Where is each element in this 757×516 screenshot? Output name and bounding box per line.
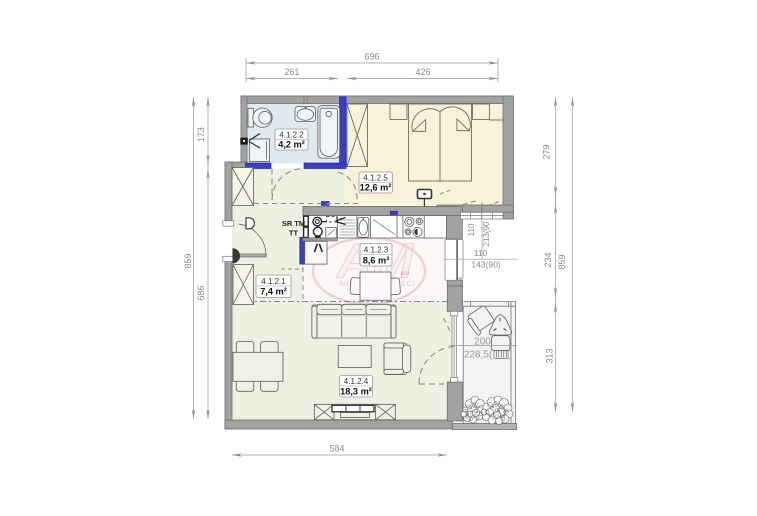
svg-text:4.1.2.4: 4.1.2.4 (344, 377, 369, 386)
svg-text:4.1.2.3: 4.1.2.3 (364, 245, 389, 254)
svg-text:173: 173 (196, 127, 206, 142)
svg-text:4.1.2.5: 4.1.2.5 (363, 174, 388, 183)
svg-text:7,4 m²: 7,4 m² (260, 287, 287, 297)
svg-text:4.1.2.1: 4.1.2.1 (261, 277, 286, 286)
svg-text:): ) (509, 350, 512, 361)
svg-text:200: 200 (474, 337, 491, 348)
svg-text:213(90: 213(90 (482, 221, 491, 246)
svg-text:4,2 m²: 4,2 m² (278, 140, 305, 150)
svg-text:.ple: .ple (399, 270, 410, 277)
svg-text:686: 686 (196, 285, 206, 300)
svg-text:426: 426 (415, 67, 430, 77)
svg-text:584: 584 (329, 444, 344, 454)
svg-text:261: 261 (284, 67, 299, 77)
svg-text:859: 859 (557, 254, 567, 269)
svg-text:12,6 m²: 12,6 m² (360, 183, 392, 193)
svg-text:SR TM: SR TM (282, 219, 305, 228)
svg-text:110: 110 (467, 223, 476, 236)
svg-text:696: 696 (364, 52, 379, 62)
svg-text:279: 279 (542, 144, 552, 159)
svg-text:TT: TT (289, 229, 299, 238)
svg-text:110: 110 (474, 248, 488, 258)
svg-text:8,6 m²: 8,6 m² (363, 256, 390, 266)
svg-text:313: 313 (545, 348, 555, 363)
svg-text:143(90): 143(90) (471, 260, 500, 270)
svg-text:859: 859 (183, 253, 193, 268)
svg-text:18,3 m²: 18,3 m² (340, 387, 372, 397)
svg-text:234: 234 (543, 252, 553, 267)
svg-text:4.1.2.2: 4.1.2.2 (279, 131, 304, 140)
svg-text:228,5(: 228,5( (464, 350, 493, 361)
